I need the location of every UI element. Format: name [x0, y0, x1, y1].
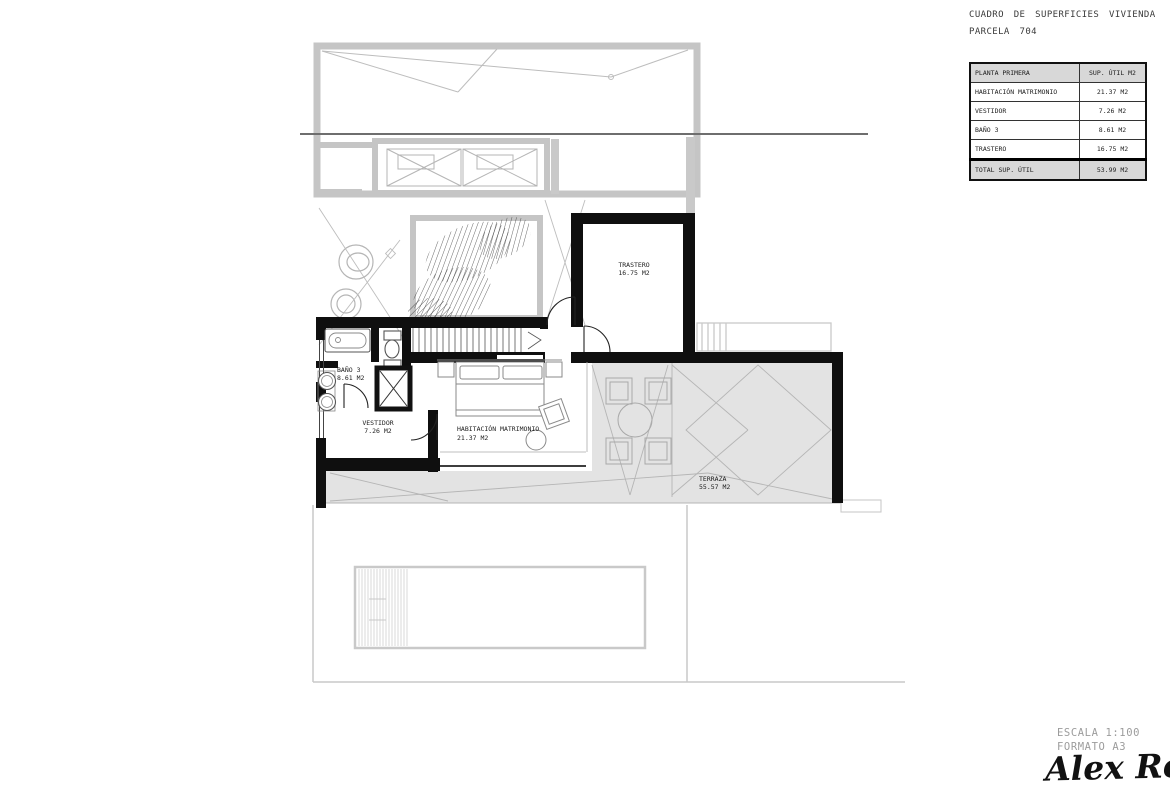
label-bano3-name: BAÑO 3 [337, 365, 361, 374]
title-block: CUADRO DE SUPERFICIES VIVIENDA PARCELA 7… [969, 10, 1169, 44]
table-row: VESTIDOR 7.26 M2 [970, 102, 1146, 121]
room-name-cell: HABITACIÓN MATRIMONIO [970, 83, 1080, 102]
parcel-number: PARCELA 704 [969, 27, 1169, 37]
table-header-value: SUP. ÚTIL M2 [1080, 63, 1147, 83]
label-bano3-area: 8.61 M2 [337, 374, 364, 382]
drawing-sheet: TRASTERO 16.75 M2 BAÑO 3 8.61 M2 VESTIDO… [0, 0, 1170, 785]
label-habitacion-name: HABITACIÓN MATRIMONIO [457, 424, 539, 433]
table-header-name: PLANTA PRIMERA [970, 63, 1080, 83]
room-name-cell: BAÑO 3 [970, 121, 1080, 140]
shower [377, 368, 410, 409]
table-row: BAÑO 3 8.61 M2 [970, 121, 1146, 140]
room-area-cell: 8.61 M2 [1080, 121, 1147, 140]
architect-signature: Alex Ros [1045, 746, 1170, 785]
label-terraza-name: TERRAZA [699, 475, 726, 483]
total-area-cell: 53.99 M2 [1080, 160, 1147, 181]
void-hatch [406, 208, 540, 333]
label-trastero-area: 16.75 M2 [618, 269, 649, 277]
table-row: HABITACIÓN MATRIMONIO 21.37 M2 [970, 83, 1146, 102]
area-table: PLANTA PRIMERA SUP. ÚTIL M2 HABITACIÓN M… [969, 62, 1147, 181]
sheet-title: CUADRO DE SUPERFICIES VIVIENDA [969, 10, 1169, 20]
table-row: TRASTERO 16.75 M2 [970, 140, 1146, 160]
table-header-row: PLANTA PRIMERA SUP. ÚTIL M2 [970, 63, 1146, 83]
lower-floor-skylights [317, 137, 695, 215]
scale-label: ESCALA 1:100 [1057, 726, 1140, 740]
label-vestidor-area: 7.26 M2 [364, 427, 391, 435]
room-name-cell: TRASTERO [970, 140, 1080, 160]
table-total-row: TOTAL SUP. ÚTIL 53.99 M2 [970, 160, 1146, 181]
pool [355, 567, 645, 648]
exterior-stair [697, 323, 831, 351]
staircase [413, 328, 541, 352]
label-vestidor-name: VESTIDOR [362, 419, 393, 427]
room-area-cell: 21.37 M2 [1080, 83, 1147, 102]
total-name-cell: TOTAL SUP. ÚTIL [970, 160, 1080, 181]
label-habitacion-area: 21.37 M2 [457, 434, 488, 442]
room-name-cell: VESTIDOR [970, 102, 1080, 121]
label-trastero-name: TRASTERO [618, 261, 649, 269]
room-area-cell: 7.26 M2 [1080, 102, 1147, 121]
room-area-cell: 16.75 M2 [1080, 140, 1147, 160]
label-terraza-area: 55.57 M2 [699, 483, 730, 491]
stair-direction-arrow [528, 332, 541, 349]
